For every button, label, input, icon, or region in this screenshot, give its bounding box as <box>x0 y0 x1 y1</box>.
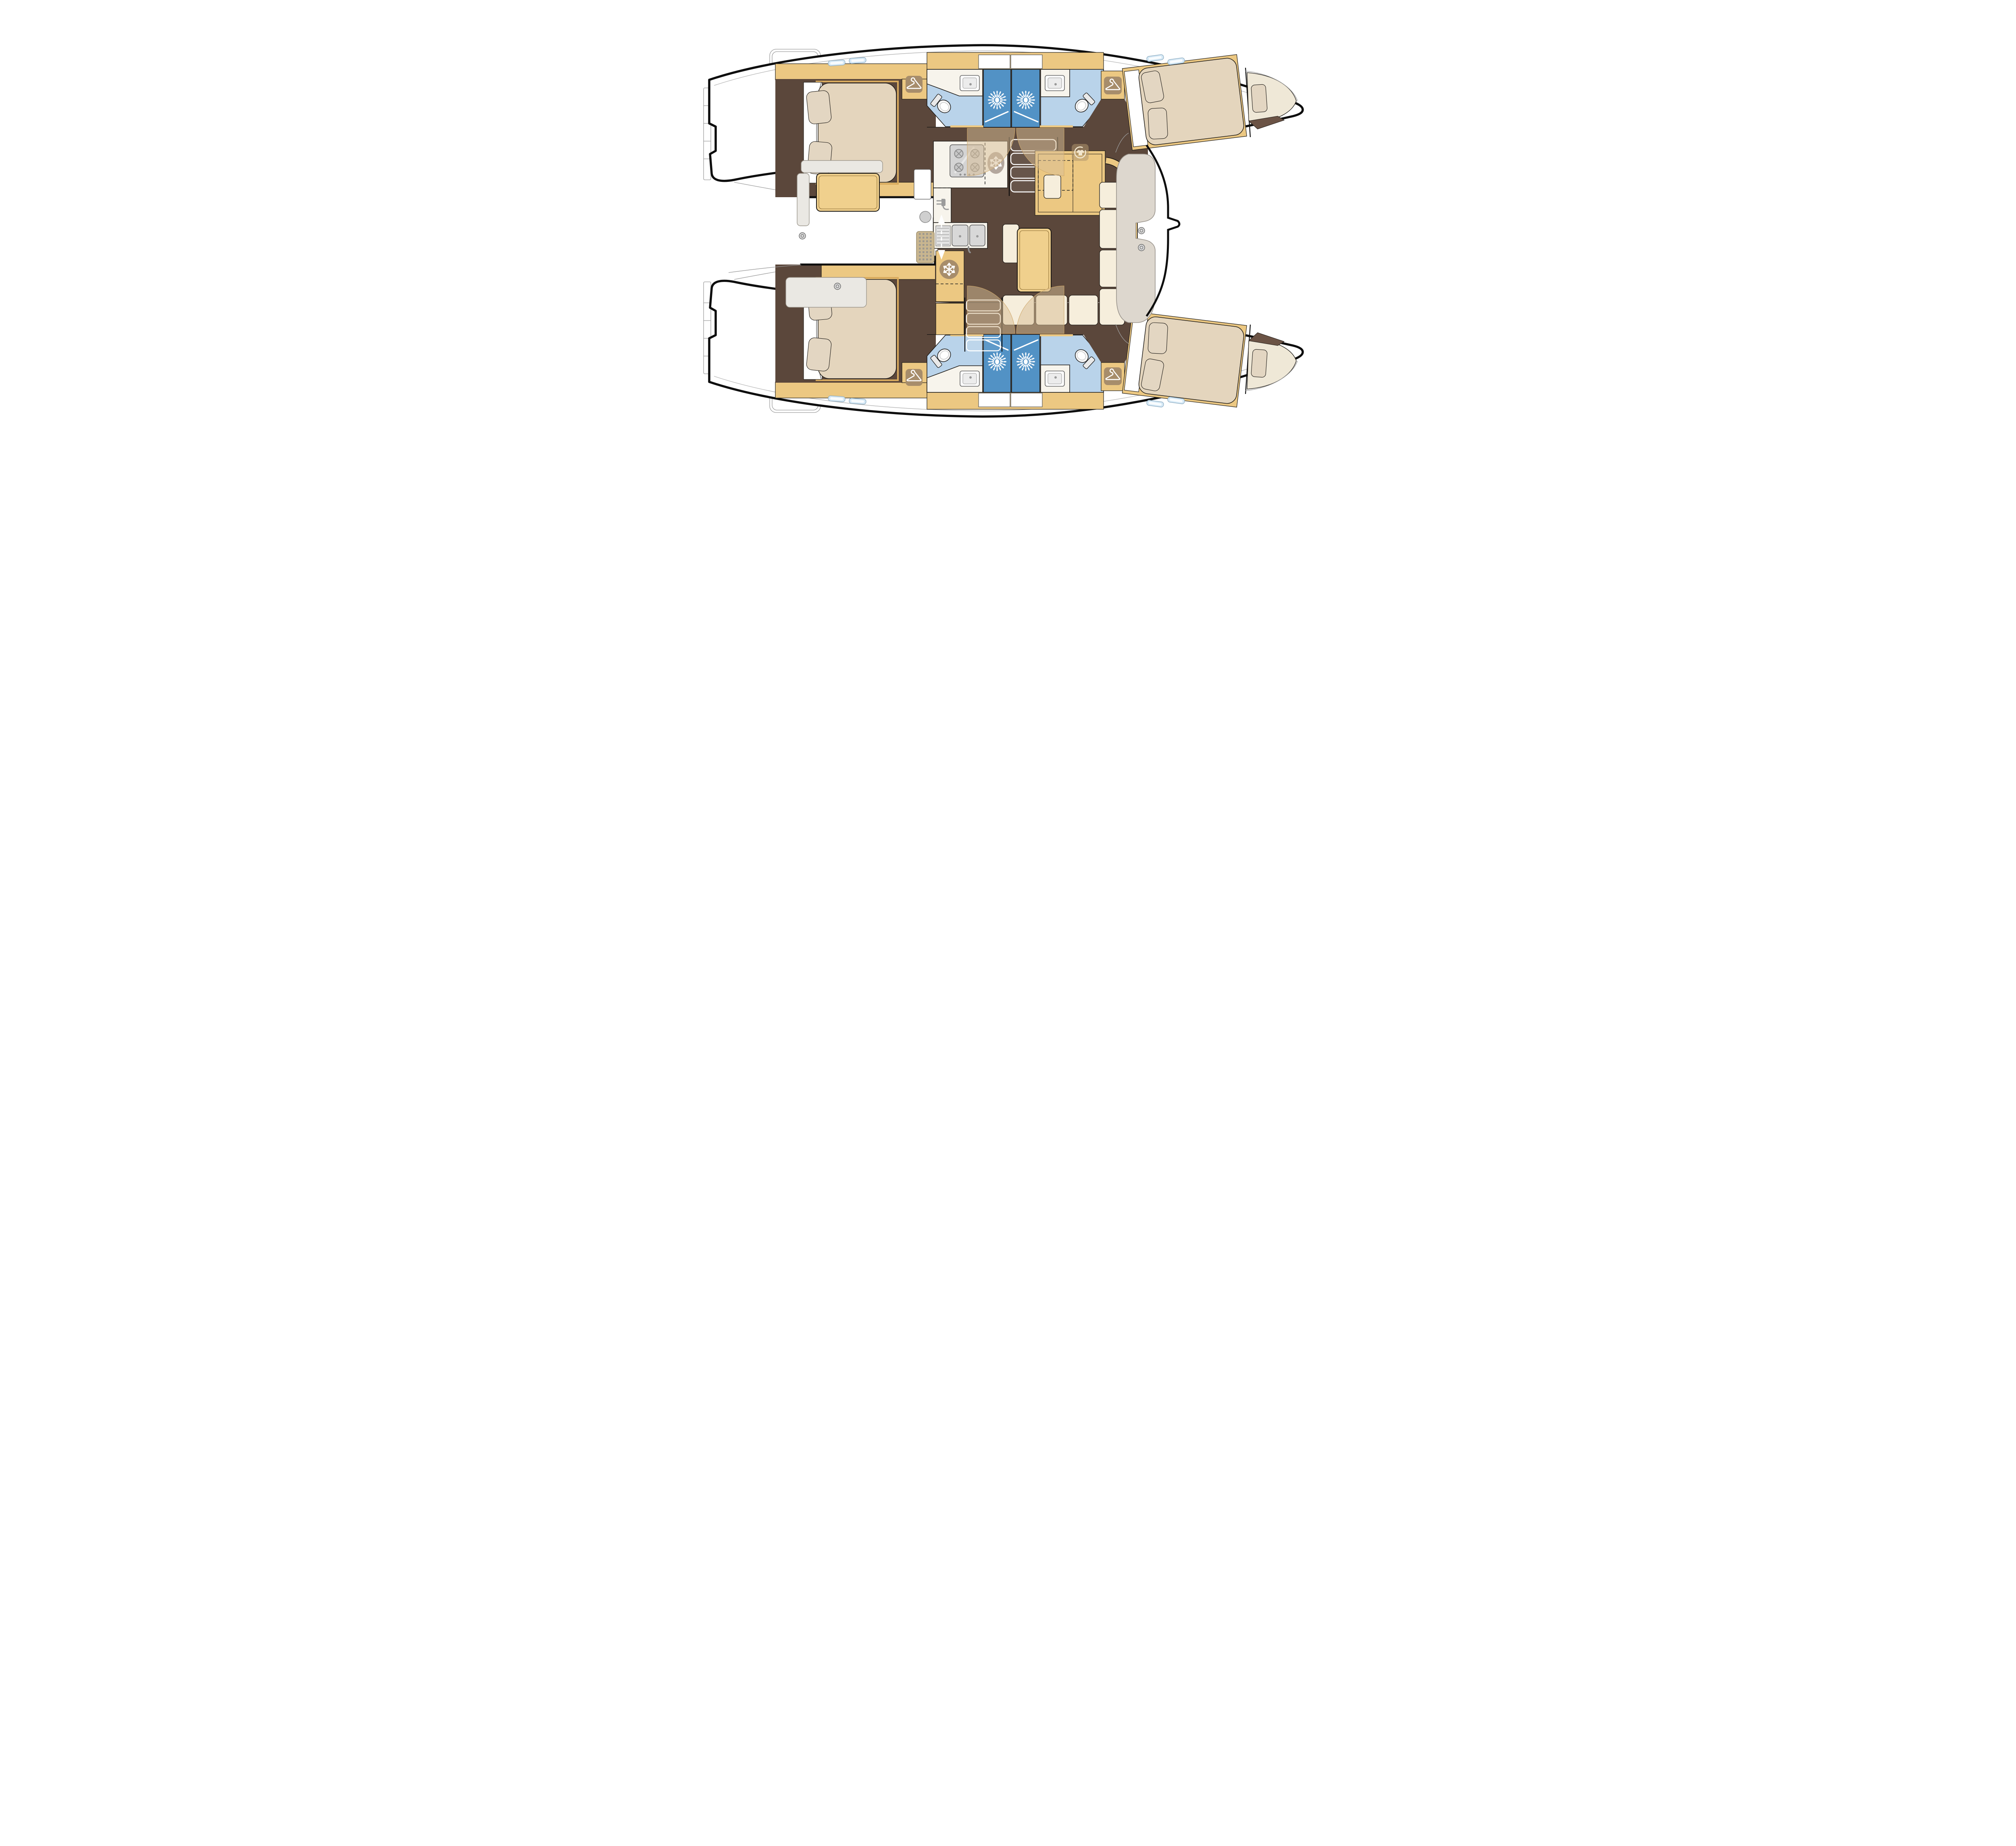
basin-icon <box>1045 75 1064 91</box>
pillow <box>806 90 832 124</box>
winch-icon <box>834 283 841 290</box>
cockpit-stool <box>920 211 931 223</box>
forepeak-berth: Forepeak berth <box>1245 71 1297 129</box>
cockpit-bench <box>801 160 883 173</box>
cockpit-table <box>816 173 879 211</box>
basin-icon <box>960 75 979 91</box>
saloon: Saloon with U-shaped sofa and dining tab… <box>933 128 1137 352</box>
forward-cockpit: Forward cockpit with C-shaped seat and w… <box>1116 133 1179 344</box>
floorplan-svg: Double cabin with island berth Transom s… <box>700 0 1316 462</box>
cockpit-aft-bench <box>786 277 866 307</box>
yacht-floorplan-canvas: Double cabin with island berth Transom s… <box>700 0 1316 462</box>
freezer-cabinet <box>936 251 964 335</box>
cockpit-locker <box>914 169 931 199</box>
deck-hatch-icon <box>849 57 866 64</box>
deck-hatch-icon <box>1146 54 1164 62</box>
pillow <box>1251 84 1268 113</box>
winch-icon <box>1138 227 1145 234</box>
winch-icon <box>799 233 806 239</box>
cockpit-bench <box>797 173 809 226</box>
washing-machine-icon <box>1072 144 1089 161</box>
c-shaped-seat <box>1116 154 1155 323</box>
locker <box>979 55 1010 69</box>
locker <box>1011 55 1042 69</box>
bathroom-cluster: Bathroom with toilet and washbasin <box>927 52 1104 129</box>
deck-hatch-icon <box>828 60 846 66</box>
pillow <box>1148 108 1168 139</box>
winch-icon <box>1138 244 1145 251</box>
dining-table <box>1017 228 1051 292</box>
